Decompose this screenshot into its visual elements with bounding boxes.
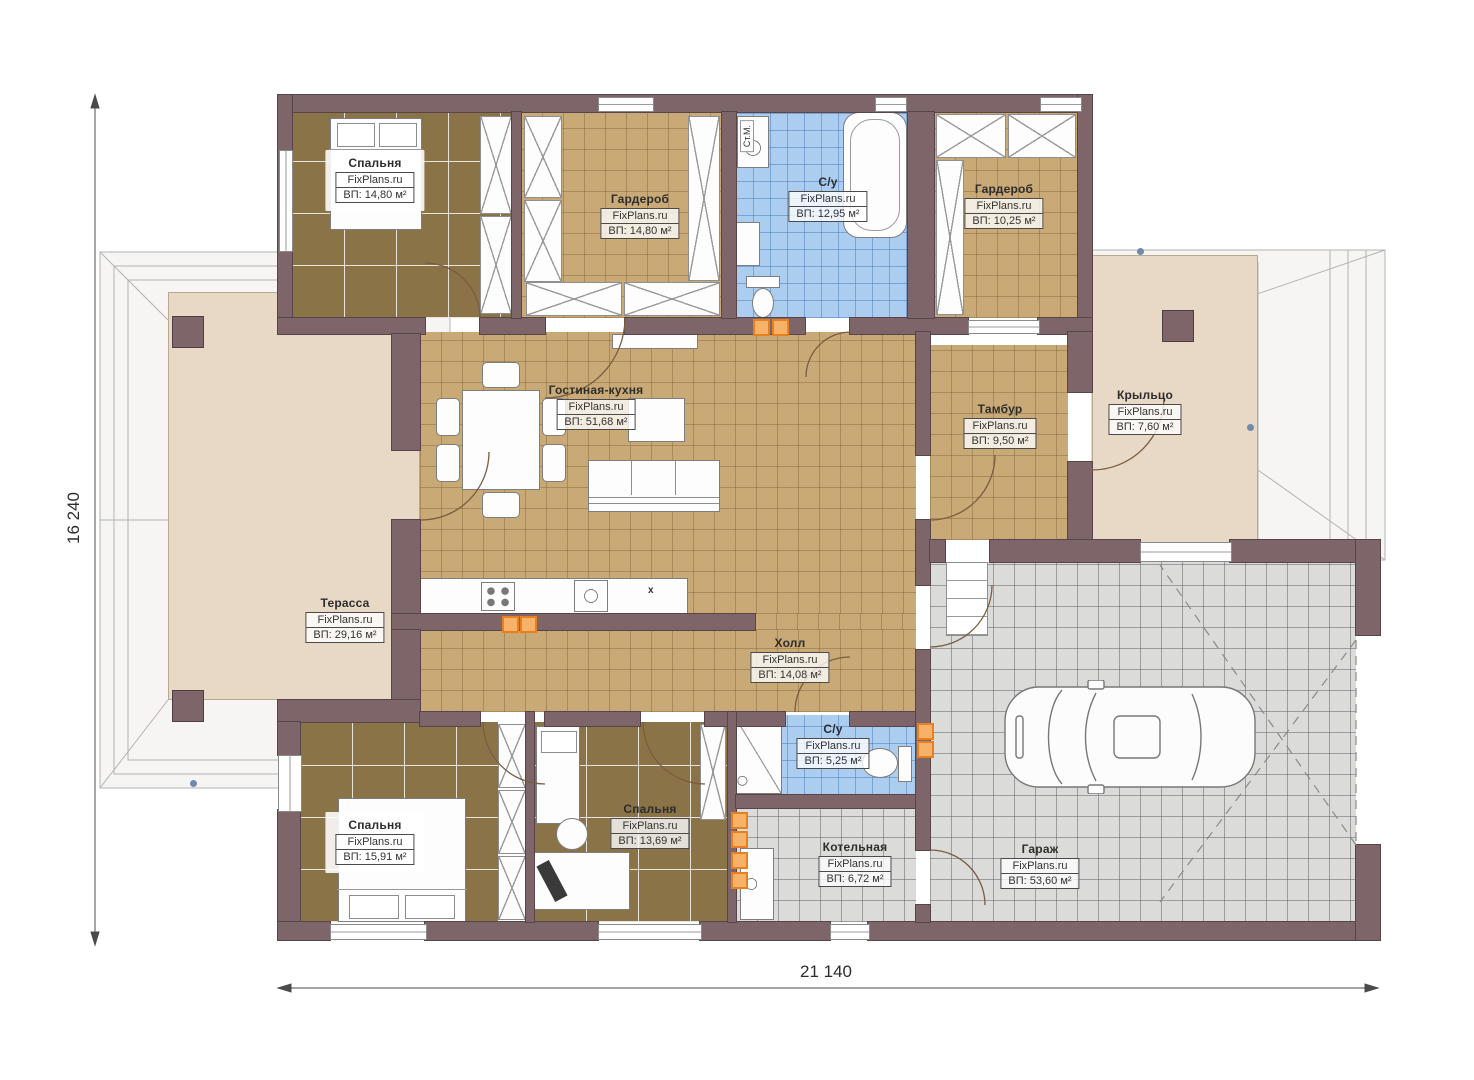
wall-segment [278,922,330,940]
brand-text: FixPlans.ru [557,400,634,415]
brand-text: FixPlans.ru [1109,405,1180,420]
room-area: ВП: 9,50 м² [964,434,1035,448]
room-name: С/у [788,175,867,189]
brand-text: FixPlans.ru [965,199,1042,214]
column [1162,310,1194,342]
room-name: Терасса [305,596,384,610]
room-name: Котельная [818,840,891,854]
dimension-width-label: 21 140 [800,962,852,982]
room-label-hall: Холл FixPlans.ru ВП: 14,08 м² [750,636,829,683]
room-area: ВП: 13,69 м² [611,834,688,848]
brand-text: FixPlans.ru [1001,859,1078,874]
roof-node-dot [1137,248,1144,255]
desk-chair [556,818,588,850]
dimension-height-label: 16 240 [64,492,84,544]
room-name: Гардероб [964,182,1043,196]
closet-unit [498,724,526,788]
wall-segment [916,332,930,455]
room-label-bedroom2: Спальня FixPlans.ru ВП: 15,91 м² [325,812,424,873]
room-name: Крыльцо [1108,388,1181,402]
room-label-boiler: Котельная FixPlans.ru ВП: 6,72 м² [818,840,891,887]
hall-floor [420,630,916,712]
vent-grille [520,616,537,633]
counter-mark: x [648,585,654,596]
chair [482,492,520,518]
vent-grille [731,852,748,869]
column [172,690,204,722]
room-label-porch: Крыльцо FixPlans.ru ВП: 7,60 м² [1108,388,1181,435]
floor-plan-canvas: x Ст.М. [0,0,1474,1080]
room-name: Спальня [335,156,414,170]
window [330,924,427,940]
closet-unit [936,160,964,315]
wall-segment [420,712,480,726]
wall-segment [1356,540,1380,635]
room-area: ВП: 51,68 м² [557,415,634,429]
room-label-wardrobe2: Гардероб FixPlans.ru ВП: 10,25 м² [964,182,1043,229]
column [172,316,204,348]
wall-segment [722,112,736,318]
brand-text: FixPlans.ru [336,835,413,850]
room-label-garage: Гараж FixPlans.ru ВП: 53,60 м² [1000,842,1079,889]
wall-segment [908,112,934,318]
wall-segment [990,540,1140,562]
room-area: ВП: 10,25 м² [965,214,1042,228]
wall-segment [392,520,420,614]
dining-table [462,390,540,490]
wall-segment [278,722,300,755]
toilet-tank [746,276,780,288]
room-area: ВП: 12,95 м² [789,207,866,221]
bed [536,726,580,824]
car-top-view [1002,680,1260,794]
brand-text: FixPlans.ru [601,209,678,224]
bathroom-sink [734,222,760,266]
window [598,97,654,112]
roof-node-dot [1247,424,1254,431]
desk [534,852,630,910]
brand-text: FixPlans.ru [751,653,828,668]
kitchen-counter [420,578,688,614]
closet-unit [624,282,720,316]
room-name: Спальня [335,818,414,832]
wall-segment [1356,845,1380,940]
closet-unit [480,116,512,214]
room-name: Гостиная-кухня [549,383,644,397]
wall-segment [705,712,785,726]
closet-unit [524,116,562,198]
vent-grille [502,616,519,633]
garage-stairs [946,562,988,636]
room-area: ВП: 14,80 м² [336,188,413,202]
brand-text: FixPlans.ru [336,173,413,188]
window [279,150,293,252]
wall-segment [850,318,968,334]
closet-unit [936,114,1006,158]
closet-unit [1008,114,1076,158]
room-label-bedroom1: Спальня FixPlans.ru ВП: 14,80 м² [325,150,424,211]
closet-unit [700,724,726,820]
wall-segment [392,614,755,630]
wall-segment [278,95,1092,112]
vent-grille [917,741,934,758]
vent-grille [753,319,770,336]
wall-segment [1078,95,1092,332]
room-area: ВП: 6,72 м² [819,872,890,886]
wall-segment [1230,540,1356,562]
wall-segment [545,712,640,726]
wall-segment [916,905,930,922]
wall-segment [512,112,521,318]
chair [436,444,460,482]
wall-segment [278,810,300,922]
vent-grille [731,831,748,848]
window [278,755,302,812]
toilet-tank [898,746,912,782]
window [598,924,702,940]
wall-segment [526,712,534,922]
toilet-bowl [752,288,774,318]
vent-grille [917,723,934,740]
brand-text: FixPlans.ru [797,739,868,754]
vent-grille [731,812,748,829]
tv-stand [612,334,698,349]
wall-segment [480,318,545,334]
chair [436,398,460,436]
window [875,97,907,112]
wall-segment [916,520,930,585]
room-area: ВП: 14,80 м² [601,224,678,238]
wall-segment [278,318,425,334]
room-area: ВП: 53,60 м² [1001,874,1078,888]
closet-unit [688,116,720,281]
closet-unit [480,216,512,314]
vent-grille [731,872,748,889]
wall-segment [392,334,420,450]
room-label-living: Гостиная-кухня FixPlans.ru ВП: 51,68 м² [549,383,644,430]
chair [542,444,566,482]
room-area: ВП: 5,25 м² [797,754,868,768]
room-name: Холл [750,636,829,650]
closet-unit [498,856,526,920]
room-name: С/у [796,722,869,736]
wall-segment [700,922,830,940]
window [968,320,1040,334]
window [830,924,870,940]
closet-unit [524,200,562,282]
room-area: ВП: 29,16 м² [306,628,383,642]
shower [734,716,782,794]
room-label-bathroom1: С/у FixPlans.ru ВП: 12,95 м² [788,175,867,222]
wall-segment [868,922,1380,940]
wall-segment [1068,332,1092,392]
room-label-bathroom2: С/у FixPlans.ru ВП: 5,25 м² [796,722,869,769]
sofa [588,460,720,512]
room-label-wardrobe1: Гардероб FixPlans.ru ВП: 14,80 м² [600,192,679,239]
wall-segment [736,795,916,808]
room-name: Спальня [610,802,689,816]
roof-node-dot [190,780,197,787]
chair [482,362,520,388]
stove [481,582,515,611]
brand-text: FixPlans.ru [611,819,688,834]
brand-text: FixPlans.ru [964,419,1035,434]
room-area: ВП: 7,60 м² [1109,420,1180,434]
window [1040,97,1082,112]
wall-segment [930,540,945,562]
brand-text: FixPlans.ru [819,857,890,872]
room-label-tambour: Тамбур FixPlans.ru ВП: 9,50 м² [963,402,1036,449]
window [1140,542,1232,562]
living-hall-opening-floor [755,614,916,630]
room-name: Тамбур [963,402,1036,416]
vent-grille [772,319,789,336]
room-name: Гараж [1000,842,1079,856]
room-area: ВП: 15,91 м² [336,850,413,864]
room-label-bedroom3: Спальня FixPlans.ru ВП: 13,69 м² [610,802,689,849]
brand-text: FixPlans.ru [789,192,866,207]
washing-machine-label: Ст.М. [740,120,754,152]
closet-unit [498,790,526,854]
closet-unit [526,282,622,316]
wall-segment [278,700,420,722]
kitchen-sink [574,580,608,612]
room-name: Гардероб [600,192,679,206]
wall-segment [425,922,598,940]
room-area: ВП: 14,08 м² [751,668,828,682]
brand-text: FixPlans.ru [306,613,383,628]
room-label-terrace: Терасса FixPlans.ru ВП: 29,16 м² [305,596,384,643]
